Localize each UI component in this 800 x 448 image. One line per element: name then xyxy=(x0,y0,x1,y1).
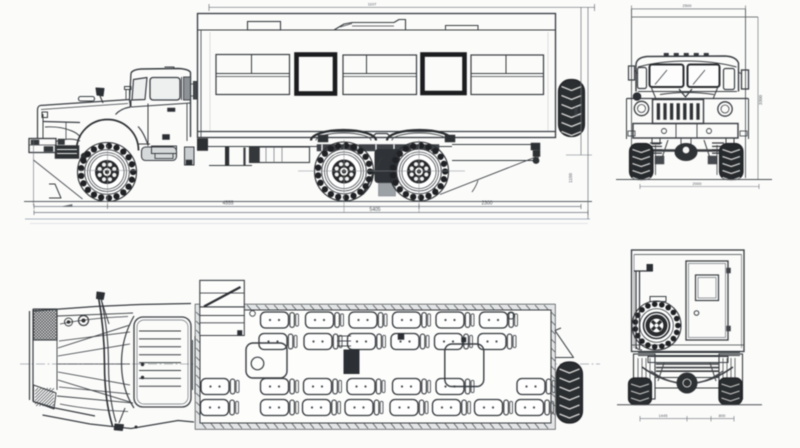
svg-text:2000: 2000 xyxy=(693,181,703,186)
svg-text:5405: 5405 xyxy=(369,207,380,213)
svg-text:4555: 4555 xyxy=(222,201,233,207)
svg-text:2500: 2500 xyxy=(683,3,693,8)
svg-text:1445: 1445 xyxy=(659,413,669,418)
svg-text:1150: 1150 xyxy=(568,173,573,183)
svg-text:3300: 3300 xyxy=(758,94,763,105)
svg-text:2500: 2500 xyxy=(574,106,579,117)
svg-text:2300: 2300 xyxy=(481,201,492,207)
svg-text:800: 800 xyxy=(719,413,726,418)
svg-text:1107: 1107 xyxy=(368,2,377,7)
